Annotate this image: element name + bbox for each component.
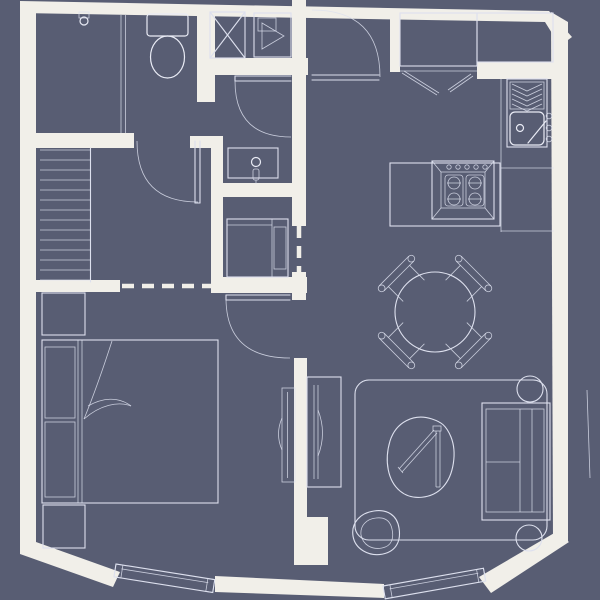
wall-center-stub xyxy=(294,517,328,565)
wall-right xyxy=(551,12,568,542)
wall-kitchen-band xyxy=(477,62,557,79)
wall-washer-south xyxy=(211,277,307,293)
wall-left xyxy=(20,2,36,548)
wall-bedroom-north-left xyxy=(36,280,120,292)
floor-plan-drawing xyxy=(0,0,600,600)
floor-plan xyxy=(0,0,600,600)
wall-center-top xyxy=(292,0,306,60)
wall-vanity-south xyxy=(211,183,295,197)
wall-vanity-west xyxy=(211,138,223,283)
wall-center-mid xyxy=(292,58,306,226)
wall-stairs-north xyxy=(28,133,134,148)
wall-hall-kitchen xyxy=(390,12,400,72)
wall-center-low xyxy=(294,358,307,519)
